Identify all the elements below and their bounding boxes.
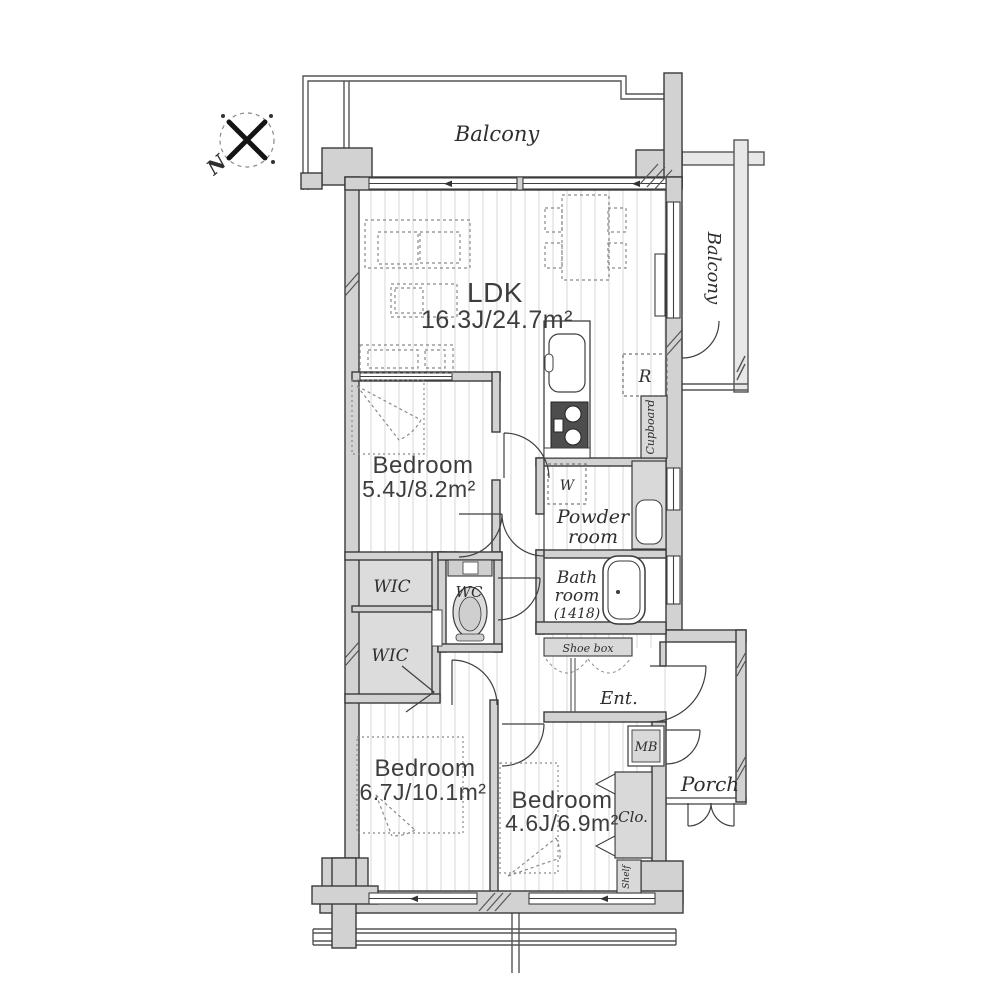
- toilet-tank-lid: [463, 562, 478, 574]
- wall-porch-top: [666, 630, 746, 642]
- door-balcony-right: [682, 321, 719, 358]
- wall-powder-bath: [536, 550, 666, 558]
- label-bed3-size: 4.6J/6.9m²: [505, 810, 619, 836]
- window-sliding-panel: [655, 254, 665, 316]
- window-mullion: [517, 177, 523, 190]
- label-wic-upper: WIC: [373, 577, 410, 597]
- floor-plan-page: N Balcony Balcony LDK 16.3J/24.7m² Bedro…: [0, 0, 1000, 1000]
- niche-shelf: [432, 610, 442, 646]
- floor-plan-canvas: N Balcony Balcony LDK 16.3J/24.7m² Bedro…: [0, 0, 1000, 1000]
- label-bath-1: Bath: [556, 568, 597, 588]
- right-rail-vertical: [734, 140, 748, 392]
- compass: N: [201, 113, 275, 180]
- toilet-bowl-inner: [459, 597, 481, 631]
- vanity-bowl: [636, 500, 662, 544]
- label-wc: WC: [456, 583, 483, 601]
- wall-ent-bottom: [544, 712, 666, 722]
- compass-star: [229, 122, 265, 158]
- wall-powder-left: [536, 458, 544, 514]
- kitchen-counter: [544, 321, 590, 458]
- wall-foot-topleft: [301, 173, 322, 189]
- label-wic-lower: WIC: [371, 646, 408, 666]
- label-mb: MB: [634, 740, 658, 755]
- bottom-rail-ends: [313, 929, 676, 945]
- sink-faucet: [545, 354, 553, 372]
- wall-bed1-right-a: [492, 372, 500, 432]
- label-bath-2: room: [555, 586, 600, 606]
- burner: [565, 429, 581, 445]
- column-cross-horizontal: [312, 886, 378, 904]
- wall-right-upper-col: [664, 73, 682, 188]
- wall-entry-jamb-upper: [660, 642, 666, 666]
- label-ldk-size: 16.3J/24.7m²: [421, 306, 573, 334]
- label-shelf: Shelf: [622, 864, 632, 889]
- label-ent: Ent.: [599, 688, 638, 709]
- label-bed2-name: Bedroom: [375, 755, 476, 782]
- label-bed1-size: 5.4J/8.2m²: [362, 476, 476, 502]
- label-shoe-box: Shoe box: [562, 642, 614, 655]
- counter-end: [544, 448, 590, 458]
- wall-wic-mid: [352, 606, 432, 612]
- door-meter-box: [666, 730, 700, 764]
- label-balcony-top: Balcony: [454, 122, 541, 146]
- label-cupboard: Cupboard: [644, 399, 657, 454]
- toilet-base: [456, 634, 484, 641]
- label-bed1-name: Bedroom: [373, 452, 474, 479]
- compass-north: N: [201, 149, 232, 180]
- wall-wc-right: [494, 552, 502, 652]
- bottom-divider-line: [512, 913, 519, 973]
- bathtub-drain: [616, 590, 620, 594]
- kitchen-sink: [549, 334, 585, 392]
- wall-bed1-right-b: [492, 480, 500, 560]
- right-rail-horizontal: [682, 152, 764, 165]
- compass-north-label: N: [201, 149, 232, 180]
- balcony-divider-line: [344, 81, 349, 148]
- grill: [554, 419, 563, 432]
- label-porch: Porch: [680, 772, 739, 796]
- wall-bedroom-divider: [490, 700, 498, 893]
- label-powder-1: Powder: [556, 506, 631, 528]
- label-fridge: R: [638, 367, 652, 387]
- compass-dot: [271, 160, 275, 164]
- compass-dot: [221, 114, 225, 118]
- label-washer: W: [560, 478, 576, 494]
- door-porch-gate: [688, 803, 734, 826]
- compass-dot: [269, 114, 273, 118]
- wall-bath-bottom: [536, 622, 666, 634]
- label-balcony-right: Balcony: [703, 231, 724, 305]
- bottom-rail-lines: [313, 929, 676, 945]
- label-bath-3: (1418): [554, 606, 601, 622]
- label-clo: Clo.: [618, 808, 648, 826]
- label-bed2-size: 6.7J/10.1m²: [360, 779, 487, 805]
- burner: [565, 406, 581, 422]
- label-powder-2: room: [568, 526, 618, 548]
- wall-wc-bottom: [438, 644, 502, 652]
- label-ldk-name: LDK: [467, 277, 523, 308]
